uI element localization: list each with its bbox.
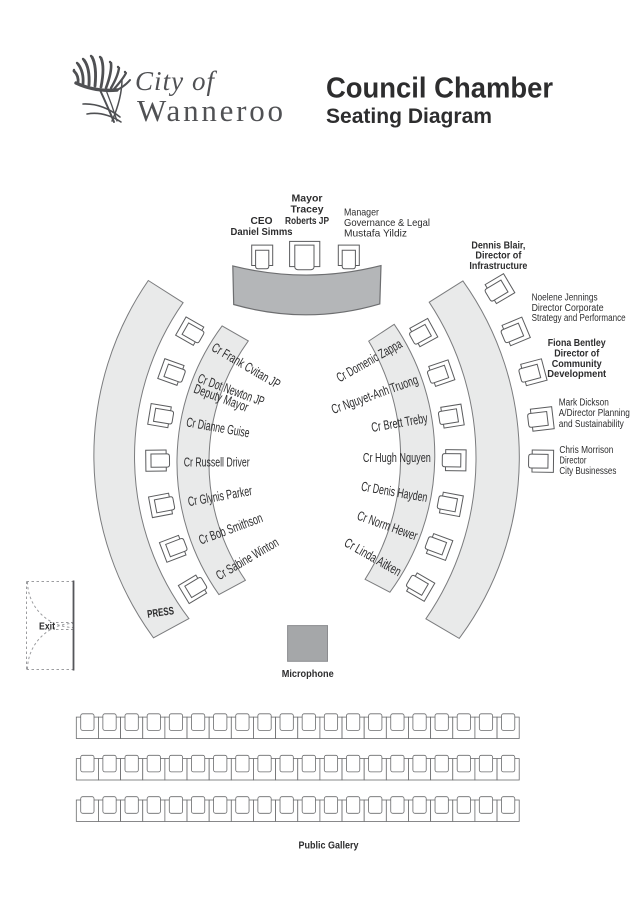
svg-text:Wanneroo: Wanneroo bbox=[137, 93, 283, 128]
svg-text:Microphone: Microphone bbox=[282, 668, 334, 680]
svg-text:Dennis Blair,: Dennis Blair, bbox=[471, 240, 525, 251]
svg-text:Roberts JP: Roberts JP bbox=[285, 215, 329, 227]
svg-text:Director of: Director of bbox=[554, 348, 600, 359]
svg-text:Director of: Director of bbox=[475, 251, 522, 262]
svg-text:Infrastructure: Infrastructure bbox=[469, 261, 527, 272]
svg-text:Council Chamber: Council Chamber bbox=[326, 73, 553, 105]
svg-text:Cr Russell Driver: Cr Russell Driver bbox=[184, 454, 250, 469]
svg-text:Chris Morrison: Chris Morrison bbox=[559, 445, 613, 456]
svg-text:Tracey: Tracey bbox=[291, 204, 324, 216]
svg-text:Seating Diagram: Seating Diagram bbox=[326, 104, 492, 128]
svg-text:Exit: Exit bbox=[39, 622, 56, 633]
svg-text:and Sustainability: and Sustainability bbox=[559, 419, 624, 430]
svg-text:Community: Community bbox=[552, 359, 602, 370]
svg-text:Daniel Simms: Daniel Simms bbox=[231, 226, 293, 238]
svg-text:City Businesses: City Businesses bbox=[559, 466, 616, 477]
svg-text:Director: Director bbox=[559, 456, 587, 467]
svg-text:Mayor: Mayor bbox=[292, 193, 323, 205]
svg-text:Cr Hugh Nguyen: Cr Hugh Nguyen bbox=[363, 450, 431, 465]
svg-text:A/Director Planning: A/Director Planning bbox=[559, 408, 630, 419]
svg-text:Mustafa Yildiz: Mustafa Yildiz bbox=[344, 228, 407, 240]
svg-text:Fiona Bentley: Fiona Bentley bbox=[548, 338, 606, 349]
svg-text:Mark Dickson: Mark Dickson bbox=[559, 398, 609, 409]
svg-text:Strategy and Performance: Strategy and Performance bbox=[532, 313, 626, 324]
svg-text:City of: City of bbox=[135, 66, 217, 96]
svg-text:Development: Development bbox=[547, 369, 607, 380]
svg-text:Public Gallery: Public Gallery bbox=[299, 841, 359, 852]
